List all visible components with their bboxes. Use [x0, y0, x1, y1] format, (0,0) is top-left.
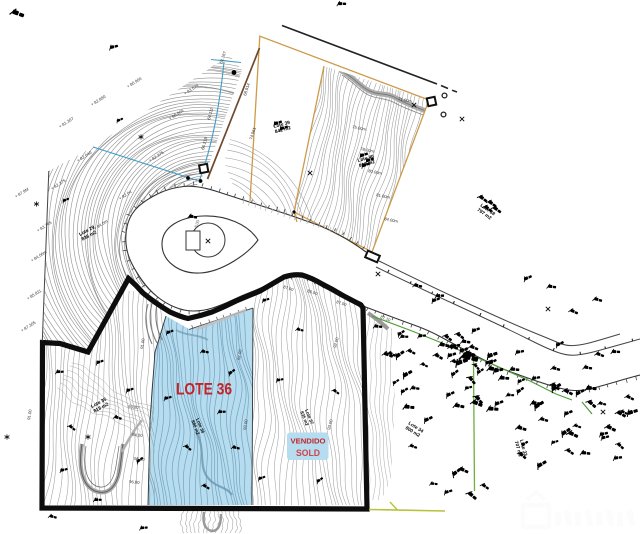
svg-text:VENDIDO: VENDIDO: [291, 437, 326, 446]
svg-text:96.00: 96.00: [129, 479, 141, 485]
svg-text:95.00: 95.00: [134, 456, 146, 462]
svg-text:LOTE 36: LOTE 36: [176, 380, 232, 399]
svg-text:93.00: 93.00: [128, 404, 140, 410]
svg-text:94.00: 94.00: [132, 432, 144, 438]
svg-text:SOLD: SOLD: [296, 448, 320, 458]
